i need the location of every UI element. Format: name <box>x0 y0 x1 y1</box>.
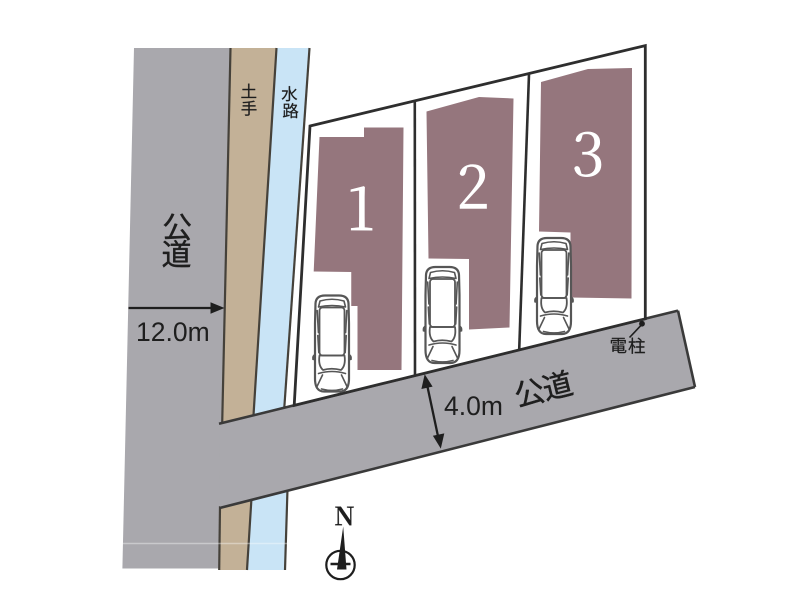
svg-text:12.0m: 12.0m <box>136 317 210 347</box>
svg-text:4.0m: 4.0m <box>444 391 503 421</box>
